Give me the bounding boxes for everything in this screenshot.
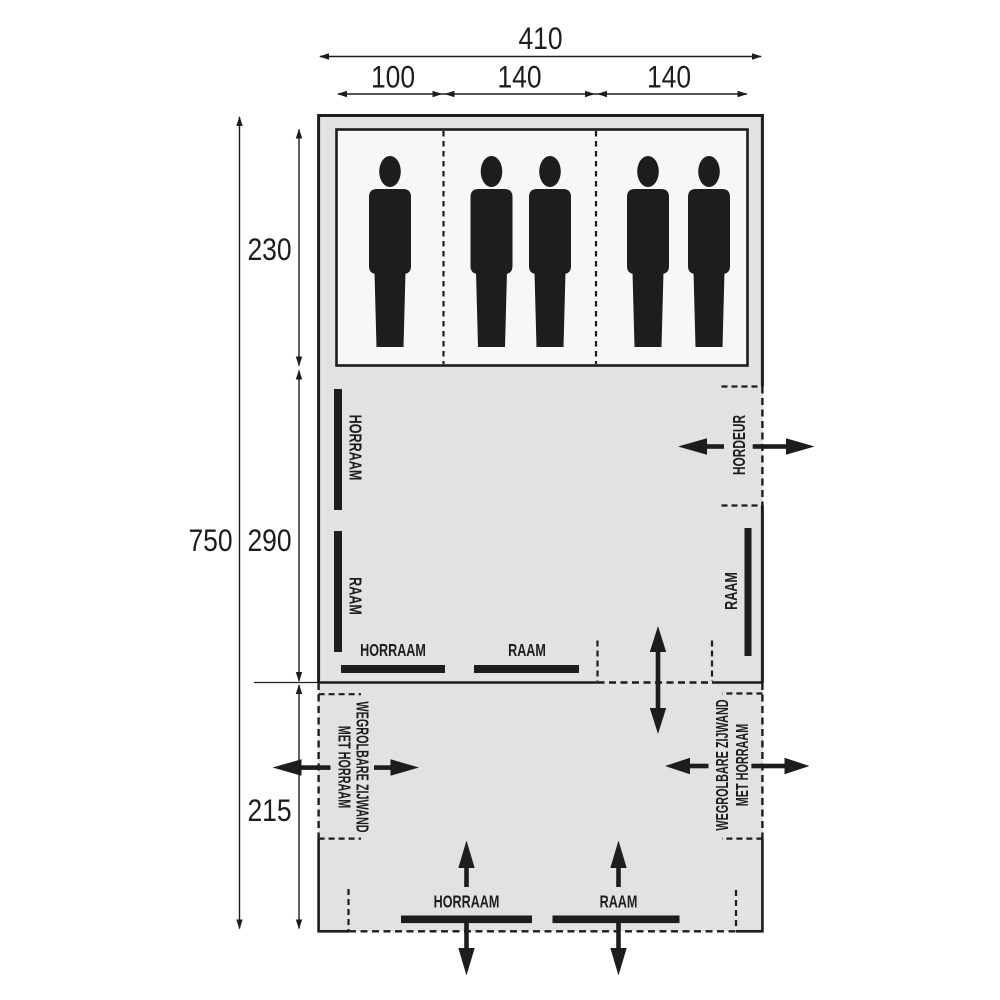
svg-text:HORRAAM: HORRAAM — [360, 641, 426, 661]
svg-text:MET HORRAAM: MET HORRAAM — [334, 726, 353, 809]
svg-text:230: 230 — [247, 233, 291, 268]
svg-text:HORRAAM: HORRAAM — [434, 892, 500, 912]
svg-text:290: 290 — [247, 524, 291, 559]
svg-text:140: 140 — [647, 60, 691, 95]
svg-text:RAAM: RAAM — [722, 572, 742, 610]
svg-text:WEGROLBARE ZIJWAND: WEGROLBARE ZIJWAND — [352, 701, 371, 832]
svg-text:410: 410 — [518, 22, 562, 57]
svg-text:MET HORRAAM: MET HORRAAM — [734, 724, 753, 807]
svg-text:RAAM: RAAM — [600, 892, 638, 912]
svg-text:750: 750 — [188, 524, 232, 559]
svg-text:100: 100 — [371, 60, 415, 95]
svg-text:RAAM: RAAM — [508, 641, 546, 661]
svg-text:HORRAAM: HORRAAM — [345, 415, 365, 481]
svg-text:WEGROLBARE ZIJWAND: WEGROLBARE ZIJWAND — [714, 699, 733, 830]
svg-text:215: 215 — [247, 794, 291, 829]
svg-text:140: 140 — [497, 60, 541, 95]
svg-text:RAAM: RAAM — [345, 577, 365, 615]
svg-text:HORDEUR: HORDEUR — [730, 415, 750, 475]
